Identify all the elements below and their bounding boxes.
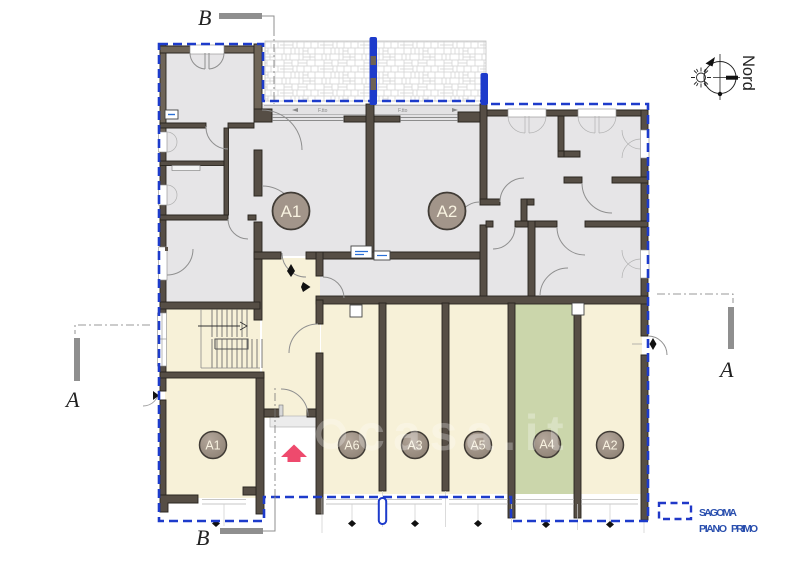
- svg-text:A: A: [718, 357, 734, 382]
- svg-text:A2: A2: [437, 202, 458, 221]
- svg-text:F.tto: F.tto: [318, 108, 328, 114]
- svg-text:A1: A1: [281, 202, 302, 221]
- svg-text:casa.it: casa.it: [357, 405, 572, 461]
- svg-text:A: A: [64, 387, 80, 412]
- svg-text:Nord: Nord: [739, 55, 757, 91]
- svg-text:PRIMO: PRIMO: [731, 523, 758, 535]
- svg-text:A1: A1: [205, 439, 220, 453]
- svg-text:PIANO: PIANO: [699, 523, 727, 535]
- svg-text:A2: A2: [602, 439, 617, 453]
- svg-text:F.tto: F.tto: [398, 108, 408, 114]
- svg-text:B: B: [198, 5, 211, 30]
- svg-text:B: B: [196, 525, 209, 550]
- svg-text:SAGOMA: SAGOMA: [699, 507, 737, 519]
